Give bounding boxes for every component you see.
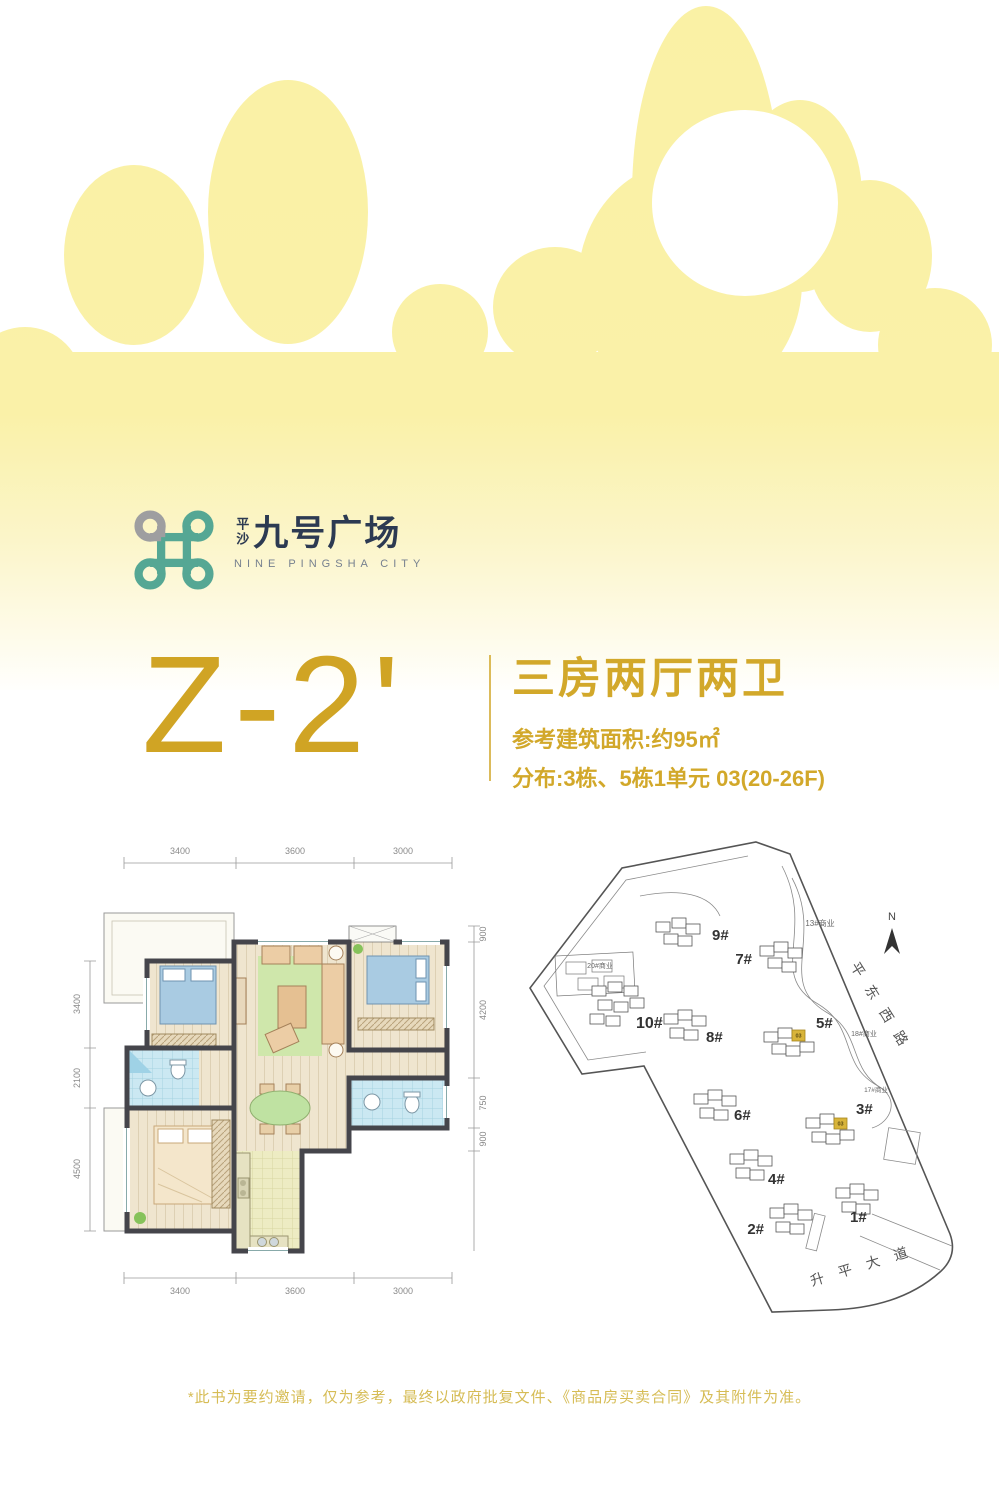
svg-text:13#商业: 13#商业 xyxy=(805,918,834,928)
svg-text:3#: 3# xyxy=(856,1101,873,1118)
brand-cn-small: 平沙 xyxy=(234,517,248,551)
svg-text:9#: 9# xyxy=(712,927,729,944)
svg-text:5#: 5# xyxy=(816,1015,833,1032)
svg-text:6#: 6# xyxy=(734,1107,751,1124)
distribution-line: 分布:3栋、5栋1单元 03(20-26F) xyxy=(512,761,825,793)
svg-text:03: 03 xyxy=(837,1122,843,1128)
floor-plan: 3400 3600 3000 3400 3600 3000 3400 2100 … xyxy=(62,838,507,1306)
brand-logo: 平沙 九号广场 NINE PINGSHA CITY xyxy=(128,504,425,596)
svg-text:1#: 1# xyxy=(850,1209,867,1226)
unit-code-title: Z-2' xyxy=(142,636,407,774)
ac-platform xyxy=(349,926,396,942)
bedroom1-furniture xyxy=(152,966,216,1046)
area-line: 参考建筑面积:约95㎡ xyxy=(512,722,825,754)
brand-text: 平沙 九号广场 NINE PINGSHA CITY xyxy=(234,504,425,570)
svg-text:10#: 10# xyxy=(636,1015,663,1032)
sun-circle xyxy=(652,110,838,296)
knot-logo-icon xyxy=(128,504,220,596)
flyer-page: 平沙 九号广场 NINE PINGSHA CITY Z-2' 三房两厅两卫 参考… xyxy=(0,0,999,1497)
svg-text:03: 03 xyxy=(795,1034,801,1040)
site-plan: 13#商业 18#商业 20#商业 17#商业 xyxy=(520,836,980,1314)
svg-text:3400: 3400 xyxy=(170,846,190,856)
svg-text:4#: 4# xyxy=(768,1171,785,1188)
svg-text:900: 900 xyxy=(478,1131,488,1146)
svg-text:3000: 3000 xyxy=(393,1286,413,1296)
disclaimer-text: *此书为要约邀请，仅为参考，最终以政府批复文件、《商品房买卖合同》及其附件为准。 xyxy=(0,1386,999,1407)
north-arrow: N xyxy=(884,911,900,954)
svg-text:N: N xyxy=(888,911,896,923)
svg-text:3000: 3000 xyxy=(393,846,413,856)
svg-text:2100: 2100 xyxy=(72,1068,82,1088)
brand-en: NINE PINGSHA CITY xyxy=(234,558,425,570)
svg-text:3600: 3600 xyxy=(285,846,305,856)
svg-text:18#商业: 18#商业 xyxy=(851,1029,877,1038)
svg-text:8#: 8# xyxy=(706,1029,723,1046)
svg-text:3400: 3400 xyxy=(170,1286,190,1296)
svg-text:7#: 7# xyxy=(735,951,752,968)
layout-title: 三房两厅两卫 xyxy=(512,644,825,706)
svg-text:900: 900 xyxy=(478,926,488,941)
headline-divider xyxy=(489,655,491,781)
svg-text:4500: 4500 xyxy=(72,1159,82,1179)
svg-text:3600: 3600 xyxy=(285,1286,305,1296)
brand-cn-main: 九号广场 xyxy=(253,516,401,551)
svg-text:4200: 4200 xyxy=(478,1000,488,1020)
svg-text:3400: 3400 xyxy=(72,994,82,1014)
svg-text:20#商业: 20#商业 xyxy=(587,961,613,970)
svg-text:2#: 2# xyxy=(747,1221,764,1238)
headline-block: 三房两厅两卫 参考建筑面积:约95㎡ 分布:3栋、5栋1单元 03(20-26F… xyxy=(512,644,825,793)
svg-text:17#商业: 17#商业 xyxy=(864,1085,888,1094)
svg-text:750: 750 xyxy=(478,1095,488,1110)
